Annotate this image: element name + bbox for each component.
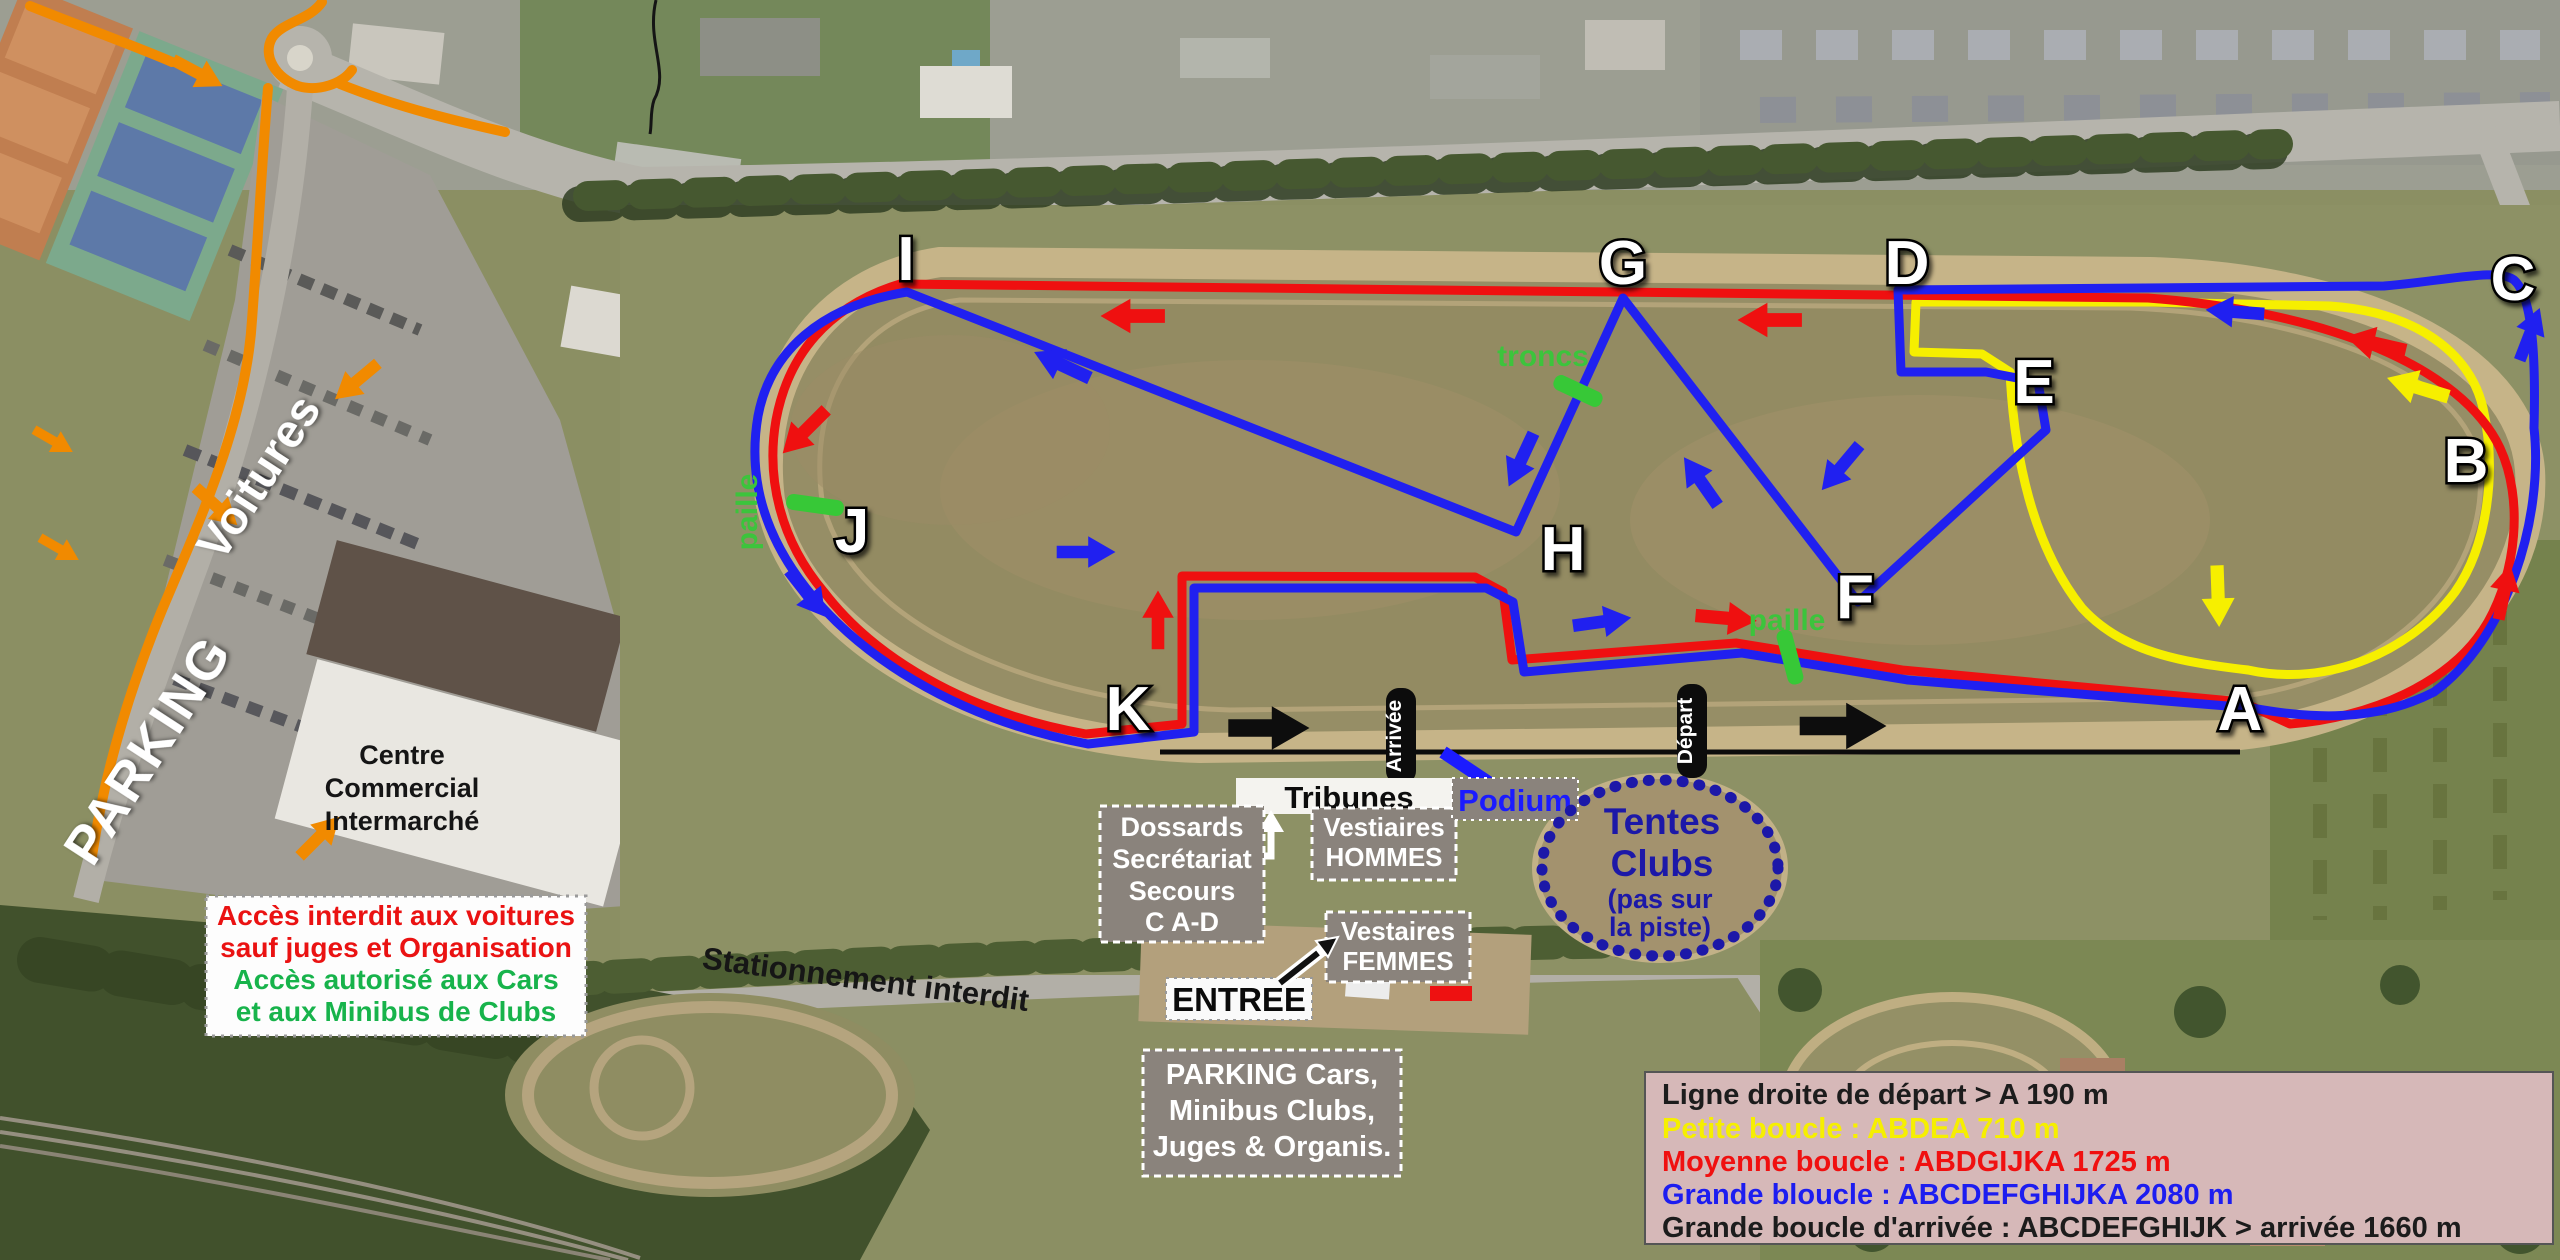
svg-text:Podium: Podium [1458, 783, 1572, 818]
svg-text:Secrétariat: Secrétariat [1112, 844, 1252, 874]
letter-I: I [897, 225, 914, 294]
legend-line: Petite boucle : ABDEA 710 m [1662, 1113, 2060, 1145]
svg-text:et aux Minibus de Clubs: et aux Minibus de Clubs [236, 996, 556, 1027]
svg-text:Dossards: Dossards [1120, 812, 1243, 842]
svg-text:(pas sur: (pas sur [1607, 884, 1713, 914]
letter-A: A [2218, 675, 2263, 744]
letter-G: G [1599, 229, 1647, 298]
parking-cars-box: PARKING Cars, Minibus Clubs, Juges & Org… [1143, 1050, 1401, 1176]
legend: Ligne droite de départ > A 190 m Petite … [1645, 1072, 2553, 1244]
letter-B: B [2444, 427, 2489, 496]
svg-text:FEMMES: FEMMES [1342, 946, 1453, 976]
legend-line: Grande bloucle : ABCDEFGHIJKA 2080 m [1662, 1179, 2234, 1211]
arrivee-label: Arrivée [1383, 700, 1406, 772]
course-map: Arrivée Départ [0, 0, 2560, 1260]
svg-text:Accès interdit aux voitures: Accès interdit aux voitures [217, 900, 575, 931]
svg-text:Commercial: Commercial [325, 773, 480, 803]
troncs-label: troncs [1497, 340, 1589, 373]
svg-text:Vestiaires: Vestiaires [1323, 812, 1444, 842]
letter-J: J [835, 497, 869, 566]
podium-box: Podium [1452, 778, 1578, 820]
svg-text:Accès autorisé aux Cars: Accès autorisé aux Cars [233, 964, 558, 995]
svg-text:la piste): la piste) [1609, 912, 1711, 942]
svg-text:Minibus Clubs,: Minibus Clubs, [1169, 1095, 1375, 1127]
legend-line: Ligne droite de départ > A 190 m [1662, 1079, 2109, 1111]
svg-text:sauf juges et Organisation: sauf juges et Organisation [220, 932, 572, 963]
access-box: Accès interdit aux voitures sauf juges e… [206, 896, 586, 1036]
letter-C: C [2491, 245, 2536, 314]
letter-K: K [1106, 675, 1151, 744]
svg-text:Juges & Organis.: Juges & Organis. [1153, 1131, 1392, 1163]
red-mark [1430, 986, 1472, 1001]
svg-text:Secours: Secours [1129, 876, 1236, 906]
svg-text:PARKING Cars,: PARKING Cars, [1166, 1059, 1378, 1091]
letter-F: F [1836, 563, 1874, 632]
map-canvas: Arrivée Départ [0, 0, 2560, 1260]
depart-label: Départ [1674, 698, 1697, 765]
letter-H: H [1541, 515, 1586, 584]
vestiaires-femmes-box: Vestaires FEMMES [1326, 912, 1470, 982]
svg-text:Centre: Centre [359, 740, 445, 770]
dossards-box: Dossards Secrétariat Secours C A-D [1100, 806, 1264, 942]
legend-line: Grande boucle d'arrivée : ABCDEFGHIJK > … [1662, 1212, 2462, 1244]
letter-D: D [1885, 229, 1930, 298]
paille-east-label: paille [1749, 604, 1826, 637]
svg-text:HOMMES: HOMMES [1326, 842, 1443, 872]
vestiaires-hommes-box: Vestiaires HOMMES [1312, 808, 1456, 880]
svg-text:Intermarché: Intermarché [325, 806, 480, 836]
letter-E: E [2013, 348, 2054, 417]
paille-west-label: paille [731, 474, 764, 551]
svg-text:Tentes: Tentes [1604, 801, 1721, 842]
svg-text:Clubs: Clubs [1611, 843, 1714, 884]
svg-text:C A-D: C A-D [1145, 907, 1219, 937]
svg-text:Vestaires: Vestaires [1341, 916, 1455, 946]
legend-line: Moyenne boucle : ABDGIJKA 1725 m [1662, 1146, 2171, 1178]
